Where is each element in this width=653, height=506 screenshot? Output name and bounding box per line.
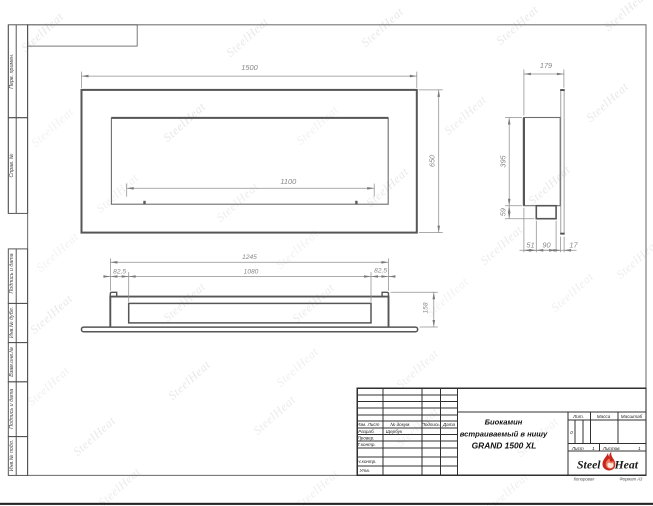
svg-text:Масса: Масса [597,414,611,419]
svg-text:1: 1 [592,446,595,451]
svg-text:Справ. №: Справ. № [9,153,15,177]
svg-text:Подпись: Подпись [421,422,440,427]
svg-text:GRAND 1500 XL: GRAND 1500 XL [472,441,537,451]
svg-text:1: 1 [638,446,641,451]
svg-text:1080: 1080 [244,268,259,275]
svg-text:Листов: Листов [602,446,620,451]
svg-text:Взам.инв.№: Взам.инв.№ [9,347,15,377]
svg-text:Масштаб: Масштаб [621,414,643,419]
svg-text:179: 179 [540,61,552,70]
svg-text:Биокамин: Биокамин [485,417,523,426]
svg-text:59: 59 [499,208,508,216]
svg-text:82,5: 82,5 [374,268,387,275]
svg-text:0: 0 [570,430,573,435]
svg-text:1100: 1100 [280,177,297,186]
svg-text:№ докум.: № докум. [390,422,410,427]
svg-text:Подпись и дата: Подпись и дата [9,253,15,293]
svg-text:1245: 1245 [242,254,257,261]
svg-text:1500: 1500 [241,63,258,72]
svg-text:встраиваемый в нишу: встраиваемый в нишу [460,429,548,438]
svg-text:Копировал: Копировал [574,477,595,482]
svg-text:82,5: 82,5 [113,268,126,275]
svg-text:Перв. примен.: Перв. примен. [9,54,15,89]
svg-text:Лит.: Лит. [572,414,584,419]
svg-text:Изм. Лист: Изм. Лист [357,422,380,427]
svg-text:51: 51 [526,241,534,250]
svg-text:Провер.: Провер. [357,436,374,441]
svg-text:Н.контр.: Н.контр. [357,459,376,464]
svg-text:650: 650 [427,154,436,167]
svg-text:Подпись и дата: Подпись и дата [9,389,15,429]
svg-text:Утв.: Утв. [360,468,370,473]
svg-text:Steel: Steel [577,457,601,471]
svg-text:Инв.№ подл.: Инв.№ подл. [9,440,15,471]
svg-text:Инв.№ дубл.: Инв.№ дубл. [9,307,15,338]
svg-text:Т.контр.: Т.контр. [357,442,376,447]
svg-text:90: 90 [542,241,551,250]
svg-text:395: 395 [499,154,508,167]
svg-text:Heat: Heat [614,457,639,471]
svg-text:Дата: Дата [442,422,456,427]
svg-text:Формат А3: Формат А3 [619,477,643,482]
svg-text:17: 17 [569,241,578,250]
svg-text:Разраб.: Разраб. [358,429,375,434]
svg-text:158: 158 [423,302,430,313]
svg-text:Лист: Лист [571,446,584,451]
svg-text:Щербук: Щербук [386,429,403,434]
